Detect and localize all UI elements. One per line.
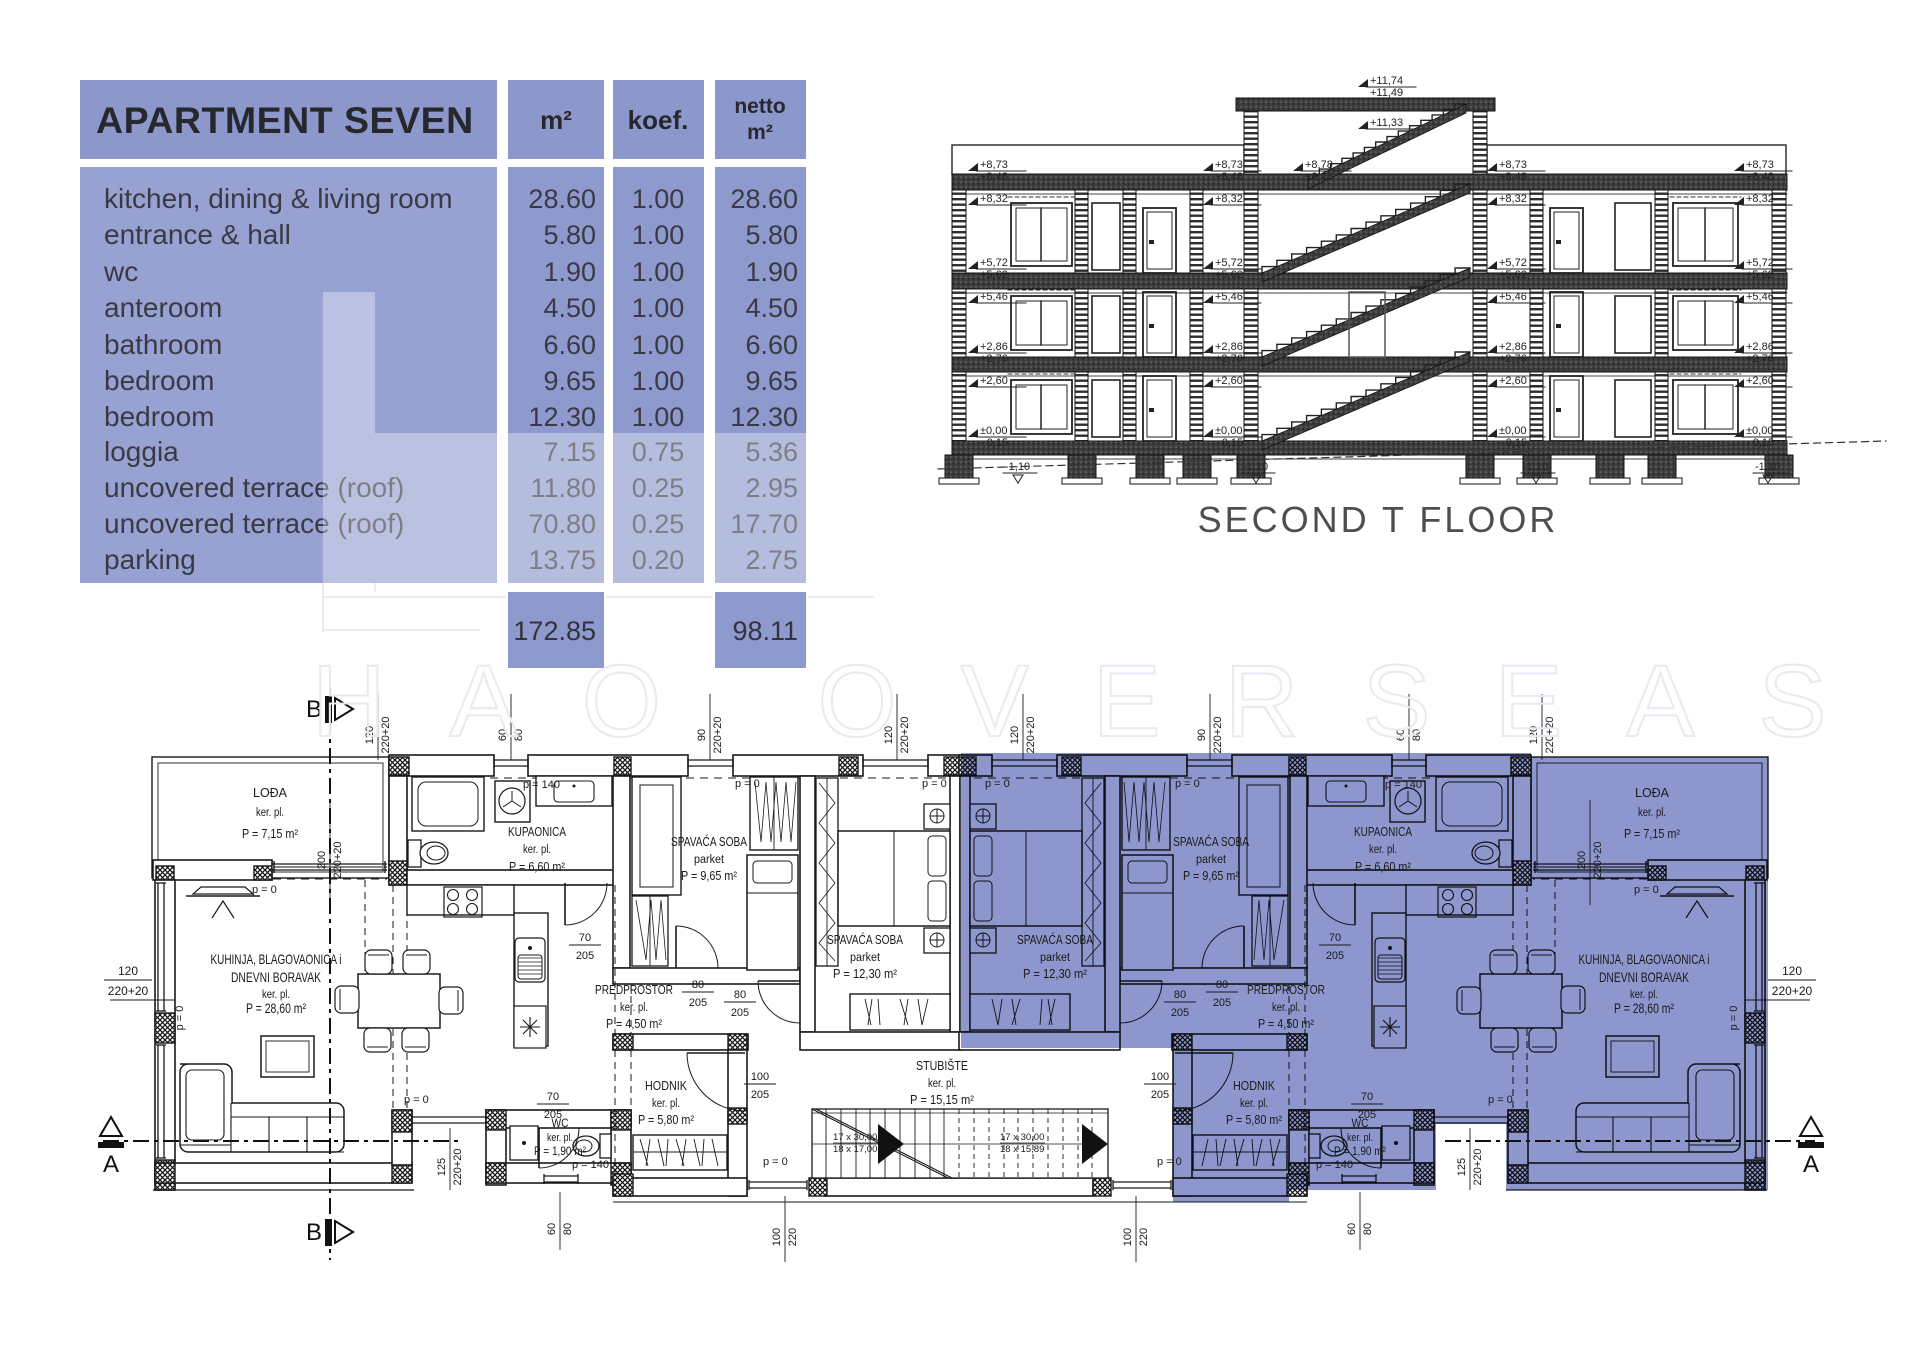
svg-text:P = 7,15 m²: P = 7,15 m² (242, 826, 299, 841)
svg-text:- 0,15: - 0,15 (1746, 437, 1774, 449)
svg-text:125: 125 (436, 1158, 448, 1176)
svg-text:anteroom: anteroom (104, 292, 222, 323)
svg-text:DNEVNI BORAVAK: DNEVNI BORAVAK (1599, 969, 1689, 985)
svg-text:SECOND T FLOOR: SECOND T FLOOR (1198, 499, 1559, 540)
svg-text:+2,76: +2,76 (1215, 353, 1243, 365)
svg-text:80: 80 (734, 989, 746, 1001)
svg-text:-1,10: -1,10 (1243, 461, 1268, 473)
svg-text:P = 28,60 m²: P = 28,60 m² (1614, 1000, 1674, 1016)
svg-text:B: B (306, 1219, 322, 1246)
svg-text:ker. pl.: ker. pl. (523, 844, 551, 856)
svg-text:205: 205 (1326, 950, 1344, 962)
svg-text:70: 70 (1361, 1091, 1373, 1103)
svg-text:+2,76: +2,76 (1499, 353, 1527, 365)
svg-text:LOĐA: LOĐA (1635, 785, 1669, 800)
svg-text:1.00: 1.00 (632, 402, 685, 432)
svg-text:1.90: 1.90 (543, 257, 596, 287)
svg-text:P = 12,30 m²: P = 12,30 m² (1023, 966, 1088, 981)
svg-text:60: 60 (1346, 1223, 1358, 1235)
svg-text:±0,00: ±0,00 (1215, 425, 1242, 437)
svg-text:+2,76: +2,76 (1746, 353, 1774, 365)
svg-text:9.65: 9.65 (745, 366, 798, 396)
svg-text:ker. pl.: ker. pl. (652, 1098, 680, 1110)
svg-text:A: A (103, 1151, 119, 1178)
svg-text:P = 9,65 m²: P = 9,65 m² (681, 868, 738, 883)
svg-text:P = 12,30 m²: P = 12,30 m² (833, 966, 898, 981)
svg-text:p = 140: p = 140 (523, 779, 560, 791)
svg-text:P = 4,50 m²: P = 4,50 m² (606, 1016, 663, 1031)
svg-text:+8,73: +8,73 (1746, 159, 1774, 171)
svg-text:+5,72: +5,72 (1215, 257, 1243, 269)
svg-text:+11,33: +11,33 (1370, 117, 1403, 129)
svg-text:200: 200 (316, 851, 328, 869)
svg-text:18 x 15,89: 18 x 15,89 (1000, 1144, 1044, 1155)
svg-text:9.65: 9.65 (543, 366, 596, 396)
svg-text:koef.: koef. (628, 105, 689, 135)
svg-text:+2,86: +2,86 (1499, 341, 1527, 353)
svg-text:28.60: 28.60 (528, 184, 596, 214)
svg-text:P = 6,60 m²: P = 6,60 m² (509, 859, 566, 874)
svg-text:P = 7,15 m²: P = 7,15 m² (1624, 826, 1681, 841)
svg-text:220+20: 220+20 (1472, 1148, 1484, 1185)
svg-text:120: 120 (118, 964, 138, 978)
svg-text:ker. pl.: ker. pl. (928, 1078, 956, 1090)
svg-text:205: 205 (544, 1109, 562, 1121)
svg-text:+8,48: +8,48 (1215, 171, 1243, 183)
svg-text:loggia: loggia (104, 436, 179, 467)
svg-text:p = 0: p = 0 (1728, 1006, 1740, 1031)
svg-text:wc: wc (103, 256, 138, 287)
svg-text:+2,60: +2,60 (980, 375, 1008, 387)
svg-text:m²: m² (540, 105, 572, 135)
svg-text:p = 0: p = 0 (922, 778, 947, 790)
svg-text:125: 125 (1456, 1158, 1468, 1176)
svg-text:SPAVAĆA SOBA: SPAVAĆA SOBA (1017, 932, 1093, 947)
svg-text:+5,62: +5,62 (1499, 269, 1527, 281)
svg-text:DNEVNI BORAVAK: DNEVNI BORAVAK (231, 969, 321, 985)
svg-text:12.30: 12.30 (528, 402, 596, 432)
svg-text:1.00: 1.00 (632, 220, 685, 250)
svg-text:ker. pl.: ker. pl. (620, 1002, 648, 1014)
svg-text:±0,00: ±0,00 (980, 425, 1007, 437)
svg-text:200: 200 (1576, 851, 1588, 869)
svg-text:17 x 30,00: 17 x 30,00 (1000, 1132, 1044, 1143)
svg-text:netto: netto (734, 95, 785, 118)
svg-text:KUPAONICA: KUPAONICA (508, 824, 566, 839)
svg-text:220+20: 220+20 (332, 841, 344, 878)
svg-text:+8,32: +8,32 (1215, 193, 1243, 205)
svg-text:+11,49: +11,49 (1370, 87, 1403, 99)
svg-text:parket: parket (694, 854, 725, 866)
svg-text:205: 205 (751, 1089, 769, 1101)
svg-text:220+20: 220+20 (1592, 841, 1604, 878)
svg-text:205: 205 (1358, 1109, 1376, 1121)
svg-text:+2,76: +2,76 (980, 353, 1008, 365)
svg-text:p = 0: p = 0 (1634, 884, 1659, 896)
svg-text:+8,48: +8,48 (980, 171, 1008, 183)
svg-text:80: 80 (1216, 979, 1228, 991)
svg-text:ker. pl.: ker. pl. (1272, 1002, 1300, 1014)
svg-text:6.60: 6.60 (543, 330, 596, 360)
svg-text:100: 100 (1122, 1228, 1134, 1246)
svg-text:p = 140: p = 140 (1385, 779, 1422, 791)
svg-text:P = 28,60 m²: P = 28,60 m² (246, 1000, 306, 1016)
svg-text:m²: m² (747, 121, 773, 144)
svg-text:6.60: 6.60 (745, 330, 798, 360)
svg-text:P = 5,80 m²: P = 5,80 m² (1226, 1112, 1283, 1127)
svg-text:±0,00: ±0,00 (1746, 425, 1773, 437)
svg-text:ker. pl.: ker. pl. (262, 987, 290, 1001)
svg-text:+8,32: +8,32 (980, 193, 1008, 205)
svg-text:100: 100 (771, 1228, 783, 1246)
svg-text:kitchen, dining & living room: kitchen, dining & living room (104, 183, 453, 214)
svg-text:205: 205 (689, 997, 707, 1009)
svg-text:- 0,15: - 0,15 (1215, 437, 1243, 449)
svg-text:A: A (1803, 1151, 1819, 1178)
svg-text:P = 6,60 m²: P = 6,60 m² (1355, 859, 1412, 874)
svg-text:+8,32: +8,32 (1746, 193, 1774, 205)
svg-text:parking: parking (104, 544, 196, 575)
svg-text:P = 9,65 m²: P = 9,65 m² (1183, 868, 1240, 883)
svg-text:p = 140: p = 140 (1316, 1159, 1353, 1171)
svg-text:120: 120 (1782, 964, 1802, 978)
svg-text:+5,72: +5,72 (1499, 257, 1527, 269)
svg-text:p = 0: p = 0 (1488, 1094, 1513, 1106)
svg-text:205: 205 (576, 950, 594, 962)
svg-text:P = 1,90 m²: P = 1,90 m² (1334, 1144, 1386, 1158)
svg-text:1.00: 1.00 (632, 257, 685, 287)
svg-text:70: 70 (547, 1091, 559, 1103)
svg-text:4.50: 4.50 (543, 293, 596, 323)
svg-text:70: 70 (579, 932, 591, 944)
svg-text:+5,62: +5,62 (1746, 269, 1774, 281)
svg-text:+2,86: +2,86 (1746, 341, 1774, 353)
svg-text:bedroom: bedroom (104, 365, 215, 396)
svg-text:+8,73: +8,73 (1215, 159, 1243, 171)
svg-text:bathroom: bathroom (104, 329, 222, 360)
svg-text:SPAVAĆA SOBA: SPAVAĆA SOBA (1173, 834, 1249, 849)
svg-text:80: 80 (562, 1223, 574, 1235)
svg-text:1.00: 1.00 (632, 330, 685, 360)
svg-text:+8,48: +8,48 (1305, 171, 1333, 183)
svg-text:ker. pl.: ker. pl. (1369, 844, 1397, 856)
svg-text:+5,72: +5,72 (980, 257, 1008, 269)
svg-text:80: 80 (1174, 989, 1186, 1001)
svg-text:+5,46: +5,46 (1499, 291, 1527, 303)
svg-text:P = 1,90 m²: P = 1,90 m² (534, 1144, 586, 1158)
svg-text:p = 0: p = 0 (1157, 1156, 1182, 1168)
svg-text:HODNIK: HODNIK (645, 1078, 687, 1093)
svg-text:17 x 30,00: 17 x 30,00 (833, 1132, 877, 1143)
svg-text:KUHINJA, BLAGOVAONICA i: KUHINJA, BLAGOVAONICA i (211, 951, 342, 967)
svg-text:parket: parket (1040, 952, 1071, 964)
svg-text:- 0,15: - 0,15 (1499, 437, 1527, 449)
svg-text:205: 205 (731, 1007, 749, 1019)
svg-text:- 0,15: - 0,15 (980, 437, 1008, 449)
svg-text:p = 0: p = 0 (1175, 778, 1200, 790)
svg-text:+2,60: +2,60 (1746, 375, 1774, 387)
svg-text:SPAVAĆA SOBA: SPAVAĆA SOBA (827, 932, 903, 947)
svg-text:80: 80 (692, 979, 704, 991)
svg-text:p = 0: p = 0 (735, 778, 760, 790)
svg-text:60: 60 (546, 1223, 558, 1235)
svg-text:80: 80 (1362, 1223, 1374, 1235)
svg-text:ker. pl.: ker. pl. (1240, 1098, 1268, 1110)
svg-text:+5,72: +5,72 (1746, 257, 1774, 269)
svg-text:APARTMENT SEVEN: APARTMENT SEVEN (96, 99, 474, 141)
svg-text:+5,46: +5,46 (1746, 291, 1774, 303)
svg-text:70: 70 (1329, 932, 1341, 944)
svg-text:220+20: 220+20 (452, 1148, 464, 1185)
svg-text:ker. pl.: ker. pl. (1638, 807, 1666, 819)
svg-text:205: 205 (1151, 1089, 1169, 1101)
svg-text:parket: parket (850, 952, 881, 964)
svg-text:+8,73: +8,73 (980, 159, 1008, 171)
svg-text:+8,32: +8,32 (1499, 193, 1527, 205)
svg-text:-1,10: -1,10 (1523, 461, 1548, 473)
svg-text:220: 220 (787, 1228, 799, 1246)
svg-text:+8,48: +8,48 (1499, 171, 1527, 183)
svg-text:ker. pl.: ker. pl. (1630, 987, 1658, 1001)
svg-text:P = 4,50 m²: P = 4,50 m² (1258, 1016, 1315, 1031)
svg-text:+2,86: +2,86 (1215, 341, 1243, 353)
svg-text:5.80: 5.80 (745, 220, 798, 250)
svg-text:parket: parket (1196, 854, 1227, 866)
svg-text:+2,86: +2,86 (980, 341, 1008, 353)
svg-text:+2,60: +2,60 (1215, 375, 1243, 387)
svg-text:172.85: 172.85 (513, 616, 596, 646)
svg-text:+5,62: +5,62 (980, 269, 1008, 281)
svg-text:LOĐA: LOĐA (253, 785, 287, 800)
svg-text:5.80: 5.80 (543, 220, 596, 250)
svg-text:KUHINJA, BLAGOVAONICA i: KUHINJA, BLAGOVAONICA i (1579, 951, 1710, 967)
svg-text:28.60: 28.60 (730, 184, 798, 214)
svg-text:220: 220 (1138, 1228, 1150, 1246)
svg-text:98.11: 98.11 (732, 616, 798, 646)
svg-text:1.00: 1.00 (632, 293, 685, 323)
svg-text:p = 0: p = 0 (763, 1156, 788, 1168)
svg-text:PREDPROSTOR: PREDPROSTOR (1247, 982, 1325, 997)
svg-text:1.90: 1.90 (745, 257, 798, 287)
svg-text:4.50: 4.50 (745, 293, 798, 323)
svg-text:ker. pl.: ker. pl. (1347, 1132, 1373, 1144)
svg-text:ker. pl.: ker. pl. (256, 807, 284, 819)
svg-text:+5,62: +5,62 (1215, 269, 1243, 281)
svg-text:+2,60: +2,60 (1499, 375, 1527, 387)
svg-text:bedroom: bedroom (104, 401, 215, 432)
svg-text:220+20: 220+20 (1772, 984, 1813, 998)
svg-text:+8,78: +8,78 (1305, 159, 1333, 171)
svg-text:205: 205 (1213, 997, 1231, 1009)
svg-text:HAO OVERSEAS: HAO OVERSEAS (312, 644, 1891, 758)
svg-text:p = 0: p = 0 (985, 778, 1010, 790)
svg-text:+8,73: +8,73 (1499, 159, 1527, 171)
svg-text:entrance & hall: entrance & hall (104, 219, 291, 250)
svg-text:PREDPROSTOR: PREDPROSTOR (595, 982, 673, 997)
svg-text:KUPAONICA: KUPAONICA (1354, 824, 1412, 839)
svg-text:p = 0: p = 0 (252, 884, 277, 896)
svg-text:+8,48: +8,48 (1746, 171, 1774, 183)
svg-text:p = 0: p = 0 (404, 1094, 429, 1106)
svg-text:p = 140: p = 140 (572, 1159, 609, 1171)
svg-text:+11,74: +11,74 (1370, 75, 1403, 87)
svg-text:HODNIK: HODNIK (1233, 1078, 1275, 1093)
svg-text:1.00: 1.00 (632, 184, 685, 214)
svg-text:ker. pl.: ker. pl. (547, 1132, 573, 1144)
svg-text:205: 205 (1171, 1007, 1189, 1019)
svg-text:±0,00: ±0,00 (1499, 425, 1526, 437)
svg-text:+5,46: +5,46 (980, 291, 1008, 303)
svg-text:1.00: 1.00 (632, 366, 685, 396)
svg-text:P = 5,80 m²: P = 5,80 m² (638, 1112, 695, 1127)
svg-text:100: 100 (751, 1071, 769, 1083)
svg-text:STUBIŠTE: STUBIŠTE (916, 1058, 968, 1073)
svg-text:-1,10: -1,10 (1005, 461, 1030, 473)
svg-text:18 x 17,00: 18 x 17,00 (833, 1144, 877, 1155)
svg-text:-1,10: -1,10 (1755, 461, 1780, 473)
svg-text:100: 100 (1151, 1071, 1169, 1083)
svg-text:P = 15,15 m²: P = 15,15 m² (910, 1092, 975, 1107)
svg-text:12.30: 12.30 (730, 402, 798, 432)
svg-text:p = 0: p = 0 (174, 1006, 186, 1031)
svg-text:+5,46: +5,46 (1215, 291, 1243, 303)
svg-text:220+20: 220+20 (108, 984, 149, 998)
svg-text:SPAVAĆA SOBA: SPAVAĆA SOBA (671, 834, 747, 849)
